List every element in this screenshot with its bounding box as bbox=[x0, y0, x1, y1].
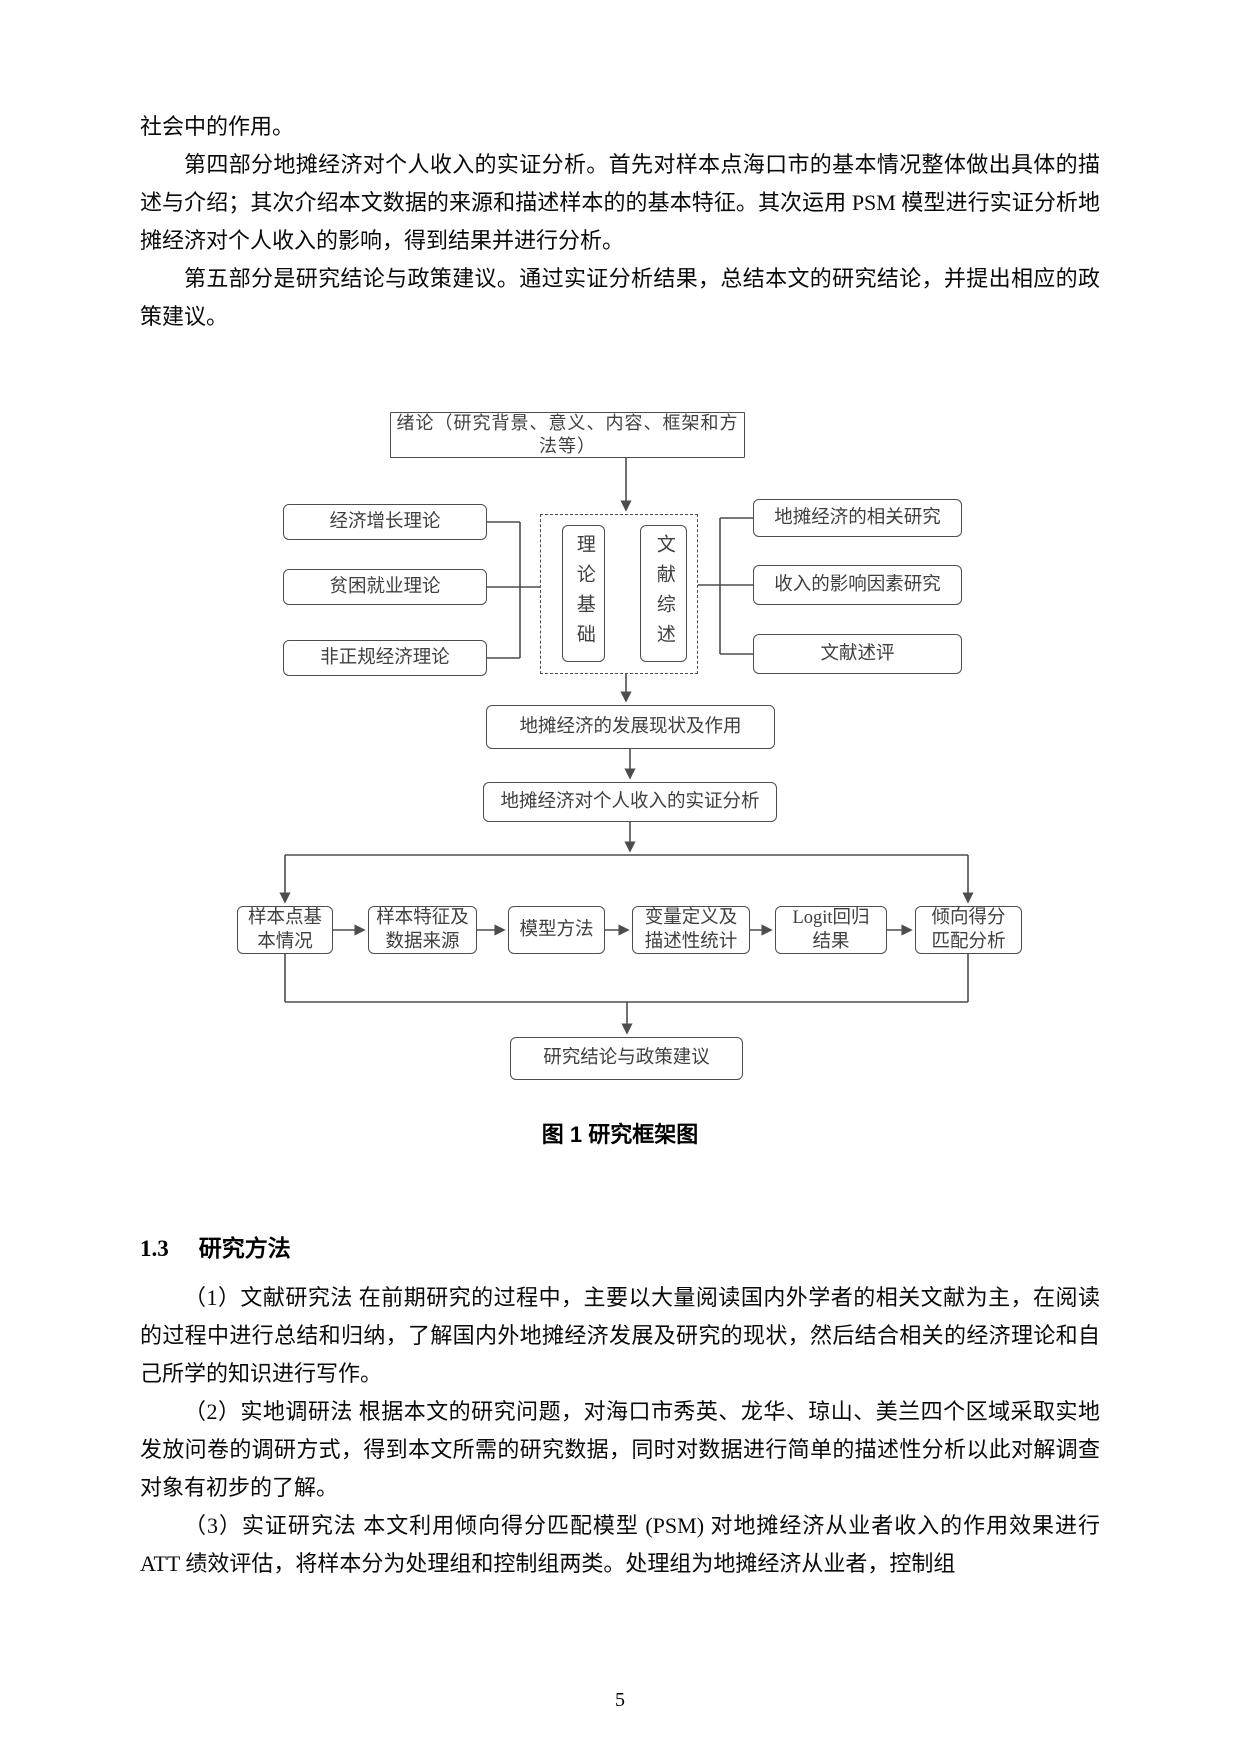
section-title: 研究方法 bbox=[199, 1235, 291, 1261]
node-psm-analysis: 倾向得分 匹配分析 bbox=[915, 906, 1022, 954]
node-sample-features-data: 样本特征及 数据来源 bbox=[368, 906, 477, 954]
node-theoretical-basis: 理论基础 bbox=[562, 525, 605, 662]
node-variable-definition: 变量定义及 描述性统计 bbox=[632, 906, 750, 954]
node-literature-review: 文献综述 bbox=[640, 525, 687, 662]
node-introduction: 绪论（研究背景、意义、内容、框架和方法等） bbox=[390, 412, 745, 458]
section-number: 1.3 bbox=[140, 1236, 169, 1261]
section-heading: 1.3研究方法 bbox=[140, 1229, 1100, 1263]
node-sample-site-basics: 样本点基 本情况 bbox=[237, 906, 333, 954]
thesis-page: 社会中的作用。 第四部分地摊经济对个人收入的实证分析。首先对样本点海口市的基本情… bbox=[0, 0, 1240, 1754]
node-model-method: 模型方法 bbox=[508, 906, 605, 954]
paragraph-part5: 第五部分是研究结论与政策建议。通过实证分析结果，总结本文的研究结论，并提出相应的… bbox=[140, 260, 1100, 336]
paragraph-method-literature: （1）文献研究法 在前期研究的过程中，主要以大量阅读国内外学者的相关文献为主，在… bbox=[140, 1279, 1100, 1393]
paragraph-part4: 第四部分地摊经济对个人收入的实证分析。首先对样本点海口市的基本情况整体做出具体的… bbox=[140, 146, 1100, 260]
node-empirical-analysis: 地摊经济对个人收入的实证分析 bbox=[483, 782, 777, 822]
node-poverty-employment-theory: 贫困就业理论 bbox=[283, 569, 487, 605]
node-economic-growth-theory: 经济增长理论 bbox=[283, 504, 487, 540]
page-number: 5 bbox=[0, 1689, 1240, 1712]
page-content: 社会中的作用。 第四部分地摊经济对个人收入的实证分析。首先对样本点海口市的基本情… bbox=[0, 0, 1240, 1583]
node-development-status: 地摊经济的发展现状及作用 bbox=[486, 705, 775, 749]
methods-paragraphs: （1）文献研究法 在前期研究的过程中，主要以大量阅读国内外学者的相关文献为主，在… bbox=[140, 1279, 1100, 1583]
paragraph-continuation: 社会中的作用。 bbox=[140, 108, 1100, 146]
node-literature-commentary: 文献述评 bbox=[753, 634, 962, 674]
node-logit-regression: Logit回归 结果 bbox=[775, 906, 887, 954]
figure-caption: 图 1 研究框架图 bbox=[140, 1117, 1100, 1149]
node-street-economy-research: 地摊经济的相关研究 bbox=[753, 499, 962, 537]
paragraph-method-fieldwork: （2）实地调研法 根据本文的研究问题，对海口市秀英、龙华、琼山、美兰四个区域采取… bbox=[140, 1393, 1100, 1507]
research-framework-diagram: 绪论（研究背景、意义、内容、框架和方法等） 经济增长理论 贫困就业理论 非正规经… bbox=[170, 372, 1070, 1087]
node-conclusion-policy: 研究结论与政策建议 bbox=[510, 1037, 743, 1080]
paragraph-method-empirical: （3）实证研究法 本文利用倾向得分匹配模型 (PSM) 对地摊经济从业者收入的作… bbox=[140, 1507, 1100, 1583]
node-income-factor-research: 收入的影响因素研究 bbox=[753, 565, 962, 605]
node-informal-economy-theory: 非正规经济理论 bbox=[283, 640, 487, 676]
